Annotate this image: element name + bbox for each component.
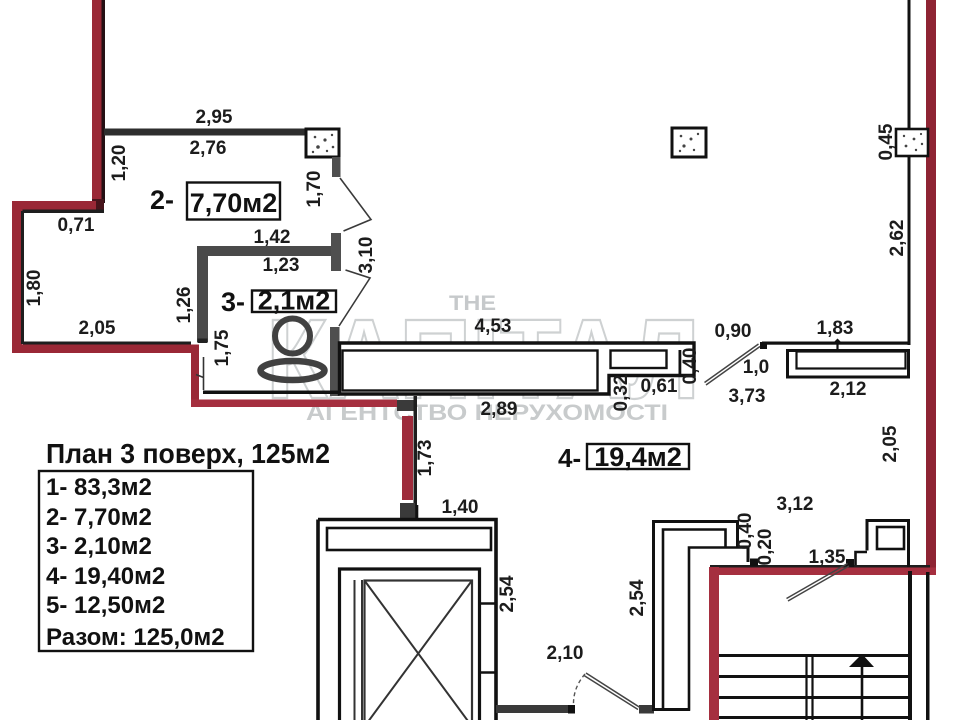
svg-text:0,20: 0,20: [755, 529, 776, 566]
svg-text:1,23: 1,23: [263, 255, 300, 276]
svg-text:3,10: 3,10: [356, 237, 377, 274]
svg-text:5- 12,50м2: 5- 12,50м2: [46, 592, 165, 619]
svg-text:7,70м2: 7,70м2: [190, 188, 278, 218]
svg-text:1,35: 1,35: [809, 547, 846, 568]
svg-text:0,90: 0,90: [715, 321, 752, 342]
svg-text:План 3 поверх, 125м2: План 3 поверх, 125м2: [46, 438, 330, 469]
svg-text:2,95: 2,95: [196, 107, 233, 128]
svg-text:1,73: 1,73: [415, 440, 436, 477]
svg-text:2-: 2-: [150, 185, 174, 215]
svg-text:2,10: 2,10: [547, 643, 584, 664]
svg-text:1,20: 1,20: [109, 145, 130, 182]
svg-text:1,70: 1,70: [304, 171, 325, 208]
svg-text:1- 83,3м2: 1- 83,3м2: [46, 474, 152, 501]
svg-text:1,0: 1,0: [743, 357, 769, 378]
svg-text:3- 2,10м2: 3- 2,10м2: [46, 533, 152, 560]
svg-text:2,89: 2,89: [481, 399, 518, 420]
svg-text:0,61: 0,61: [641, 376, 678, 397]
svg-text:1,26: 1,26: [174, 287, 195, 324]
svg-text:2,12: 2,12: [830, 379, 867, 400]
svg-text:4- 19,40м2: 4- 19,40м2: [46, 563, 165, 590]
svg-text:2,1м2: 2,1м2: [258, 286, 331, 316]
svg-text:0,45: 0,45: [876, 123, 897, 160]
svg-text:4-: 4-: [558, 443, 581, 473]
svg-text:2- 7,70м2: 2- 7,70м2: [46, 504, 152, 531]
svg-text:1,40: 1,40: [442, 497, 479, 518]
svg-text:1,42: 1,42: [254, 227, 291, 248]
svg-text:2,54: 2,54: [497, 575, 518, 612]
svg-text:2,62: 2,62: [887, 220, 908, 257]
svg-text:2,05: 2,05: [79, 318, 116, 339]
svg-text:0,40: 0,40: [680, 348, 701, 385]
svg-text:2,76: 2,76: [190, 138, 227, 159]
svg-text:19,4м2: 19,4м2: [594, 442, 682, 472]
svg-text:3,12: 3,12: [777, 494, 814, 515]
svg-text:3,73: 3,73: [729, 386, 766, 407]
svg-text:3-: 3-: [221, 287, 245, 317]
svg-text:Разом: 125,0м2: Разом: 125,0м2: [46, 624, 225, 651]
svg-text:2,05: 2,05: [880, 425, 901, 462]
svg-text:1,83: 1,83: [817, 318, 854, 339]
svg-text:1,75: 1,75: [212, 329, 233, 366]
svg-text:0,71: 0,71: [58, 215, 95, 236]
svg-text:2,54: 2,54: [627, 579, 648, 616]
svg-text:4,53: 4,53: [475, 316, 512, 337]
svg-text:1,80: 1,80: [24, 270, 45, 307]
svg-text:0,32: 0,32: [611, 375, 632, 412]
svg-text:0,40: 0,40: [735, 513, 756, 550]
